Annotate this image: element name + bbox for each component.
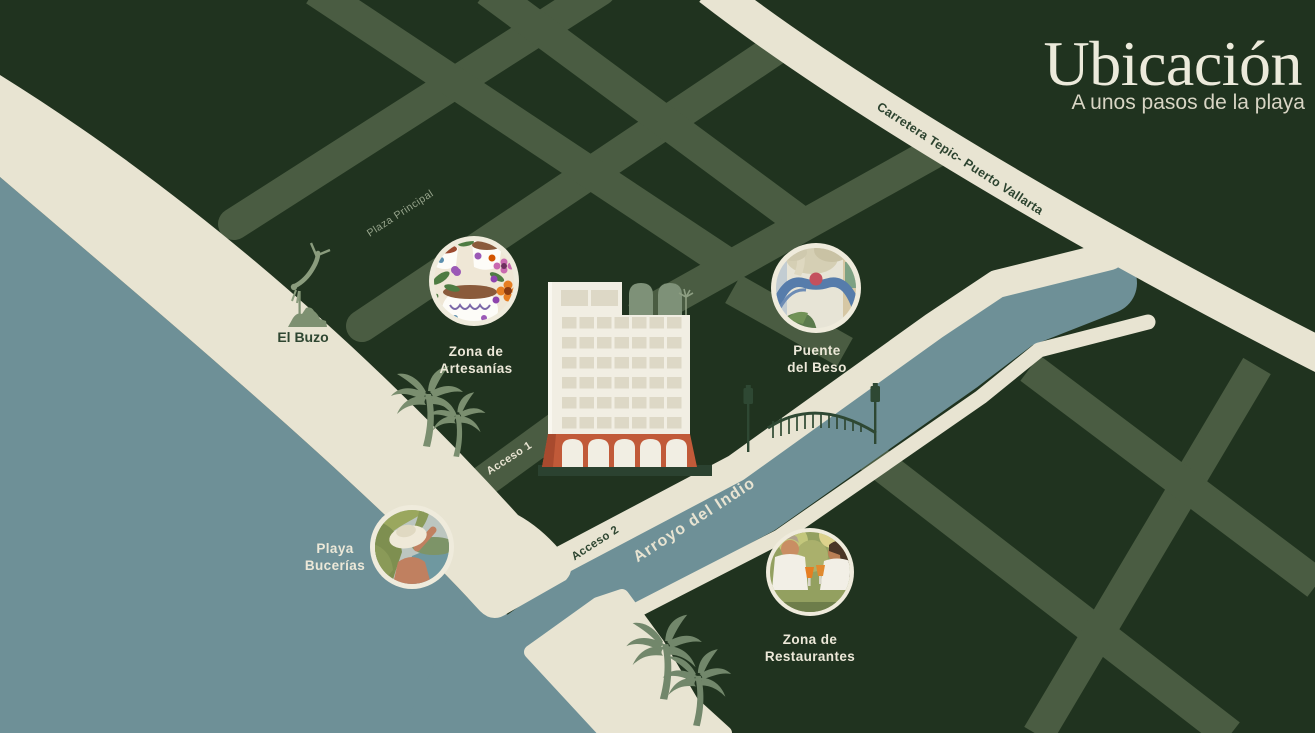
svg-text:Ubicación: Ubicación — [1044, 28, 1303, 99]
svg-text:Artesanías: Artesanías — [439, 361, 512, 376]
svg-text:Restaurantes: Restaurantes — [765, 649, 855, 664]
svg-text:Playa: Playa — [316, 541, 353, 556]
svg-text:Puente: Puente — [793, 343, 841, 358]
svg-text:del Beso: del Beso — [787, 360, 846, 375]
svg-text:A unos pasos de la playa: A unos pasos de la playa — [1071, 91, 1305, 114]
svg-text:El Buzo: El Buzo — [277, 329, 328, 345]
svg-text:Zona de: Zona de — [783, 632, 838, 647]
svg-text:Zona de: Zona de — [449, 344, 504, 359]
svg-text:Bucerías: Bucerías — [305, 558, 365, 573]
